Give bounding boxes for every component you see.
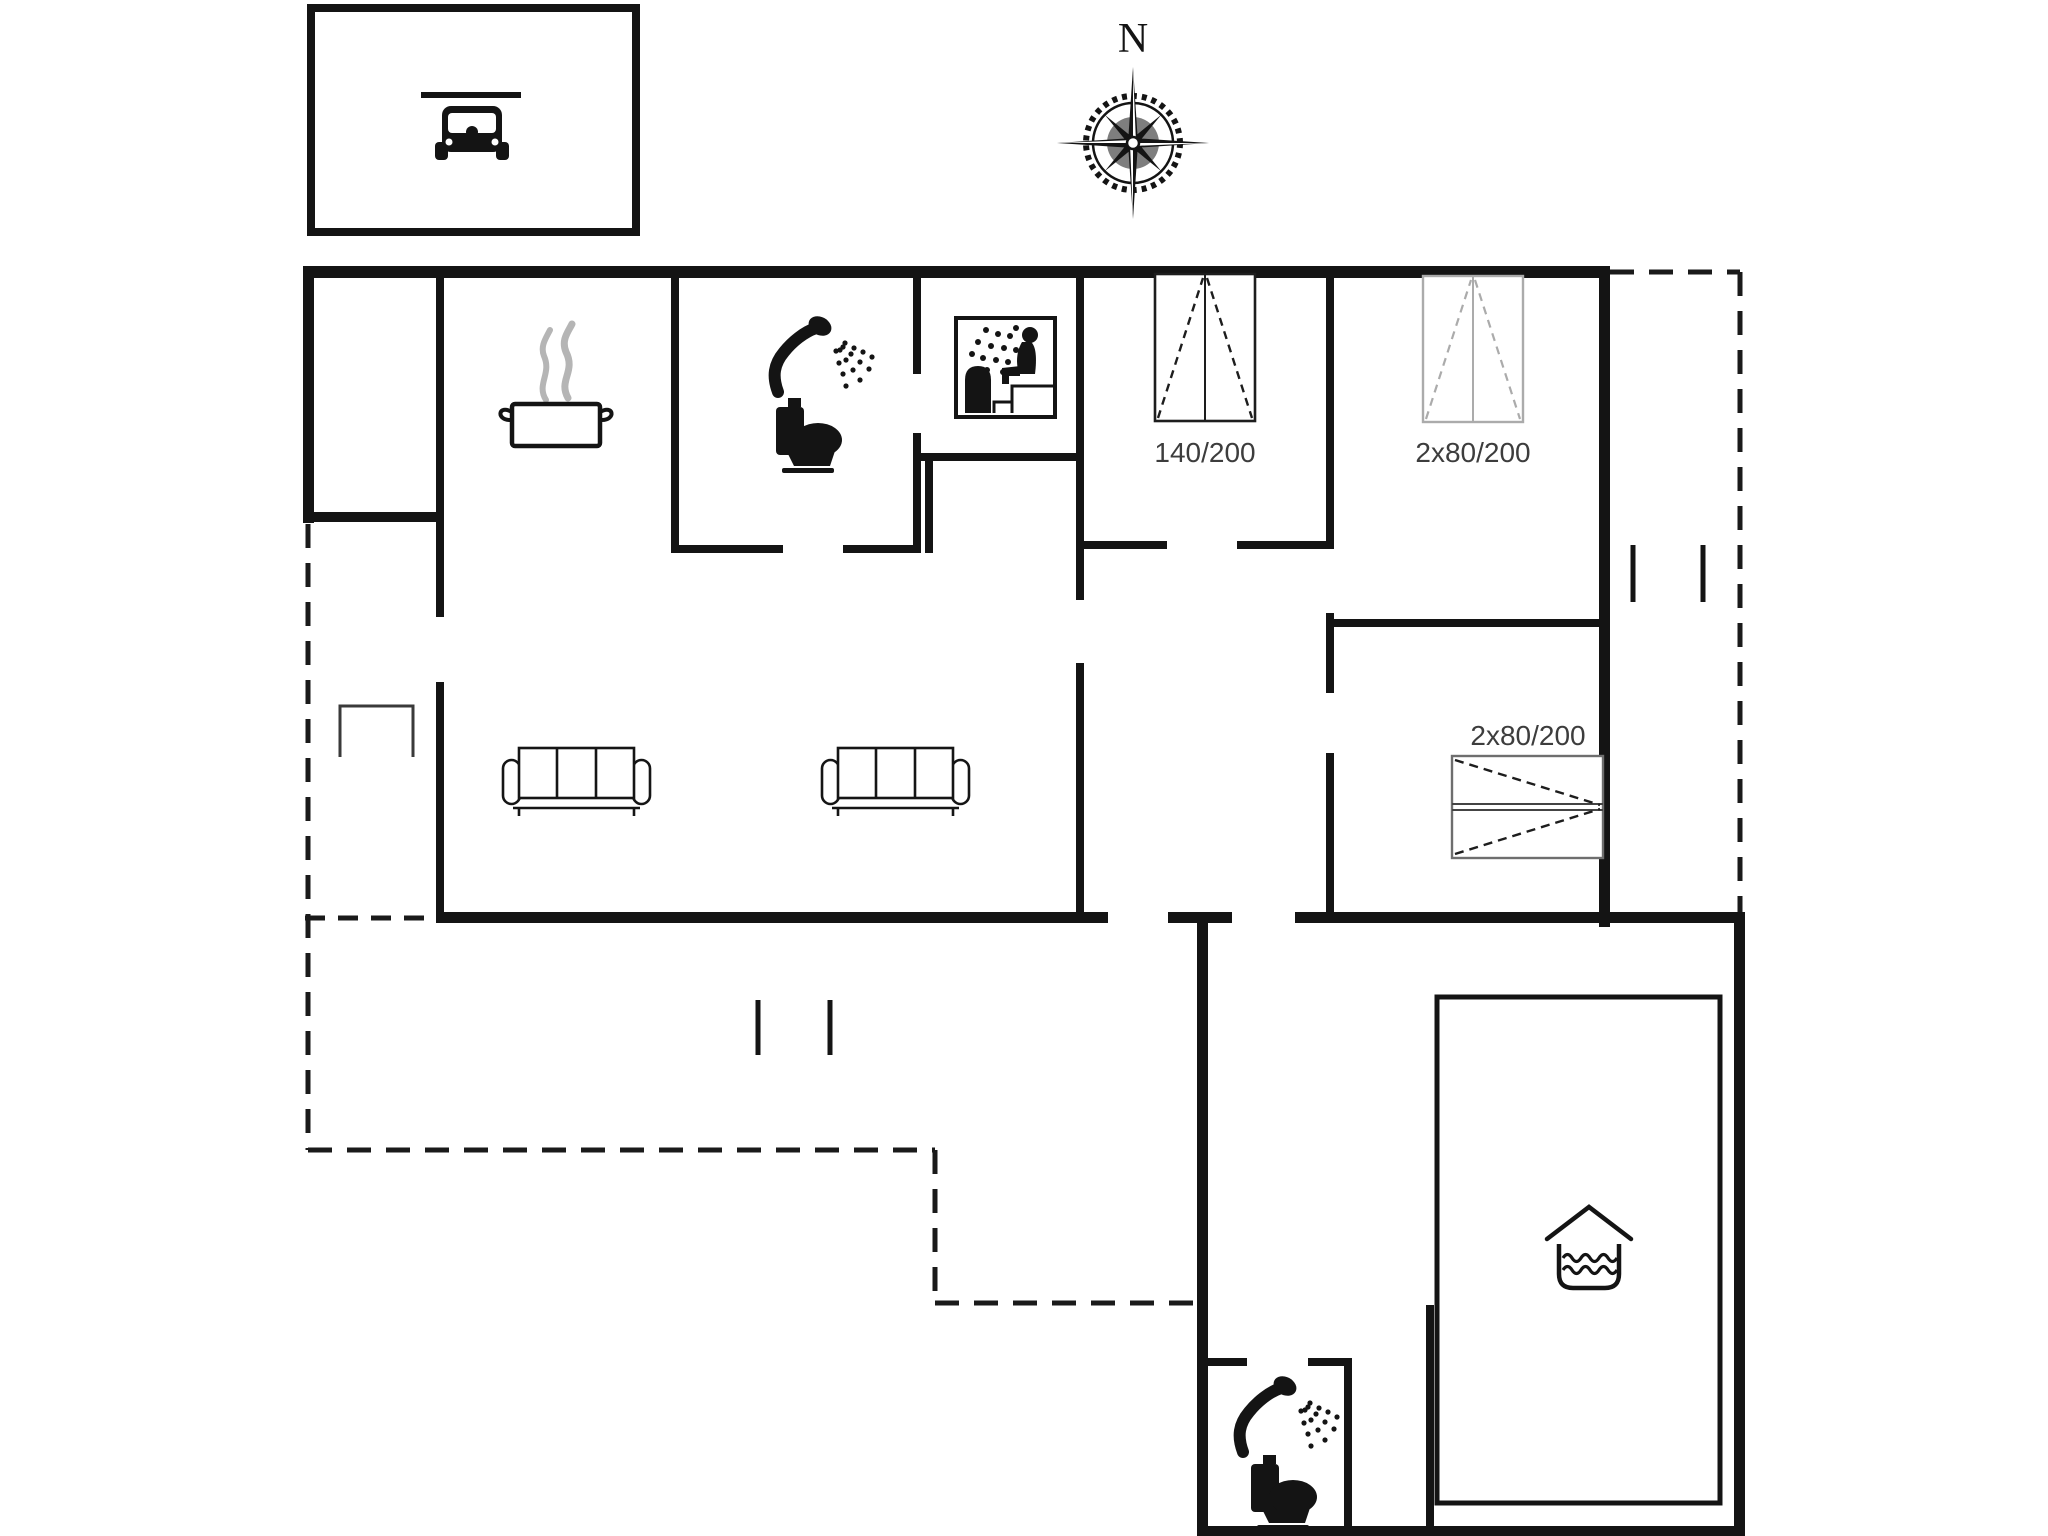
wall-living-south xyxy=(436,912,1108,923)
wall-southwing-west xyxy=(1197,912,1208,1536)
bed-size-label: 2x80/200 xyxy=(1415,437,1530,468)
carport-wall xyxy=(632,4,640,236)
wall-bath2-east xyxy=(1344,1358,1352,1526)
wall-bedroom2-west-a xyxy=(1326,613,1334,693)
wall-bath2-north-a xyxy=(1202,1358,1247,1366)
wall-bath-east-upper xyxy=(913,266,921,374)
wall-bath-south-b xyxy=(843,545,921,553)
wall-corridor-b xyxy=(1237,541,1334,549)
steam-icon xyxy=(564,324,572,398)
sofa-icon xyxy=(822,748,969,816)
toilet-icon xyxy=(776,398,842,473)
bed-twin-right: 2x80/200 xyxy=(1452,720,1603,858)
bed-double-140: 140/200 xyxy=(1154,274,1255,468)
wall-north xyxy=(303,266,1610,278)
wall-west xyxy=(303,266,314,523)
compass-north-label: N xyxy=(1118,16,1148,62)
compass-rose-icon: N xyxy=(1057,16,1209,219)
wall-bedroom2-west-b xyxy=(1326,753,1334,912)
wall-sauna-south xyxy=(921,453,1084,461)
steam-icon xyxy=(543,330,550,400)
bench-icon xyxy=(340,706,413,757)
wall-living-west-upper xyxy=(436,266,444,617)
sofa-icon xyxy=(503,748,650,816)
cooking-pot-icon xyxy=(500,324,611,446)
wall-hall-stub xyxy=(925,457,933,553)
wall-bath-south-a xyxy=(671,545,783,553)
wall-poolroom-west xyxy=(1426,1305,1434,1526)
bed-size-label: 2x80/200 xyxy=(1470,720,1585,751)
wall-bedroom2-north xyxy=(1334,619,1599,627)
wall-west-room-bottom xyxy=(303,512,444,522)
wall-hall-west-lower xyxy=(1076,663,1084,912)
sauna-icon xyxy=(956,318,1055,417)
pool-basin xyxy=(1437,997,1720,1503)
carport xyxy=(307,4,640,236)
shower-icon xyxy=(1240,1372,1340,1452)
wall-hall-west-upper xyxy=(1076,266,1084,600)
carport-wall xyxy=(307,4,315,236)
toilet-icon xyxy=(1251,1455,1317,1530)
floor-plan-page: N xyxy=(0,0,2048,1536)
wall-living-west-lower xyxy=(436,682,444,912)
wall-bedroom1-west xyxy=(1326,266,1334,545)
bed-symbol-icon xyxy=(1452,756,1603,858)
car-icon xyxy=(421,92,521,160)
wall-corridor-a xyxy=(1076,541,1167,549)
carport-wall xyxy=(307,4,640,12)
bed-twin-top: 2x80/200 xyxy=(1415,276,1530,468)
shower-icon xyxy=(775,312,875,392)
floor-plan-drawing: N xyxy=(0,0,2048,1536)
wall-bath-east-lower xyxy=(913,433,921,553)
wall-kitchen-east xyxy=(671,266,679,553)
carport-wall xyxy=(307,228,640,236)
wall-southwing-east xyxy=(1734,912,1745,1536)
bed-size-label: 140/200 xyxy=(1154,437,1255,468)
wall-southwing-north xyxy=(1295,912,1745,923)
